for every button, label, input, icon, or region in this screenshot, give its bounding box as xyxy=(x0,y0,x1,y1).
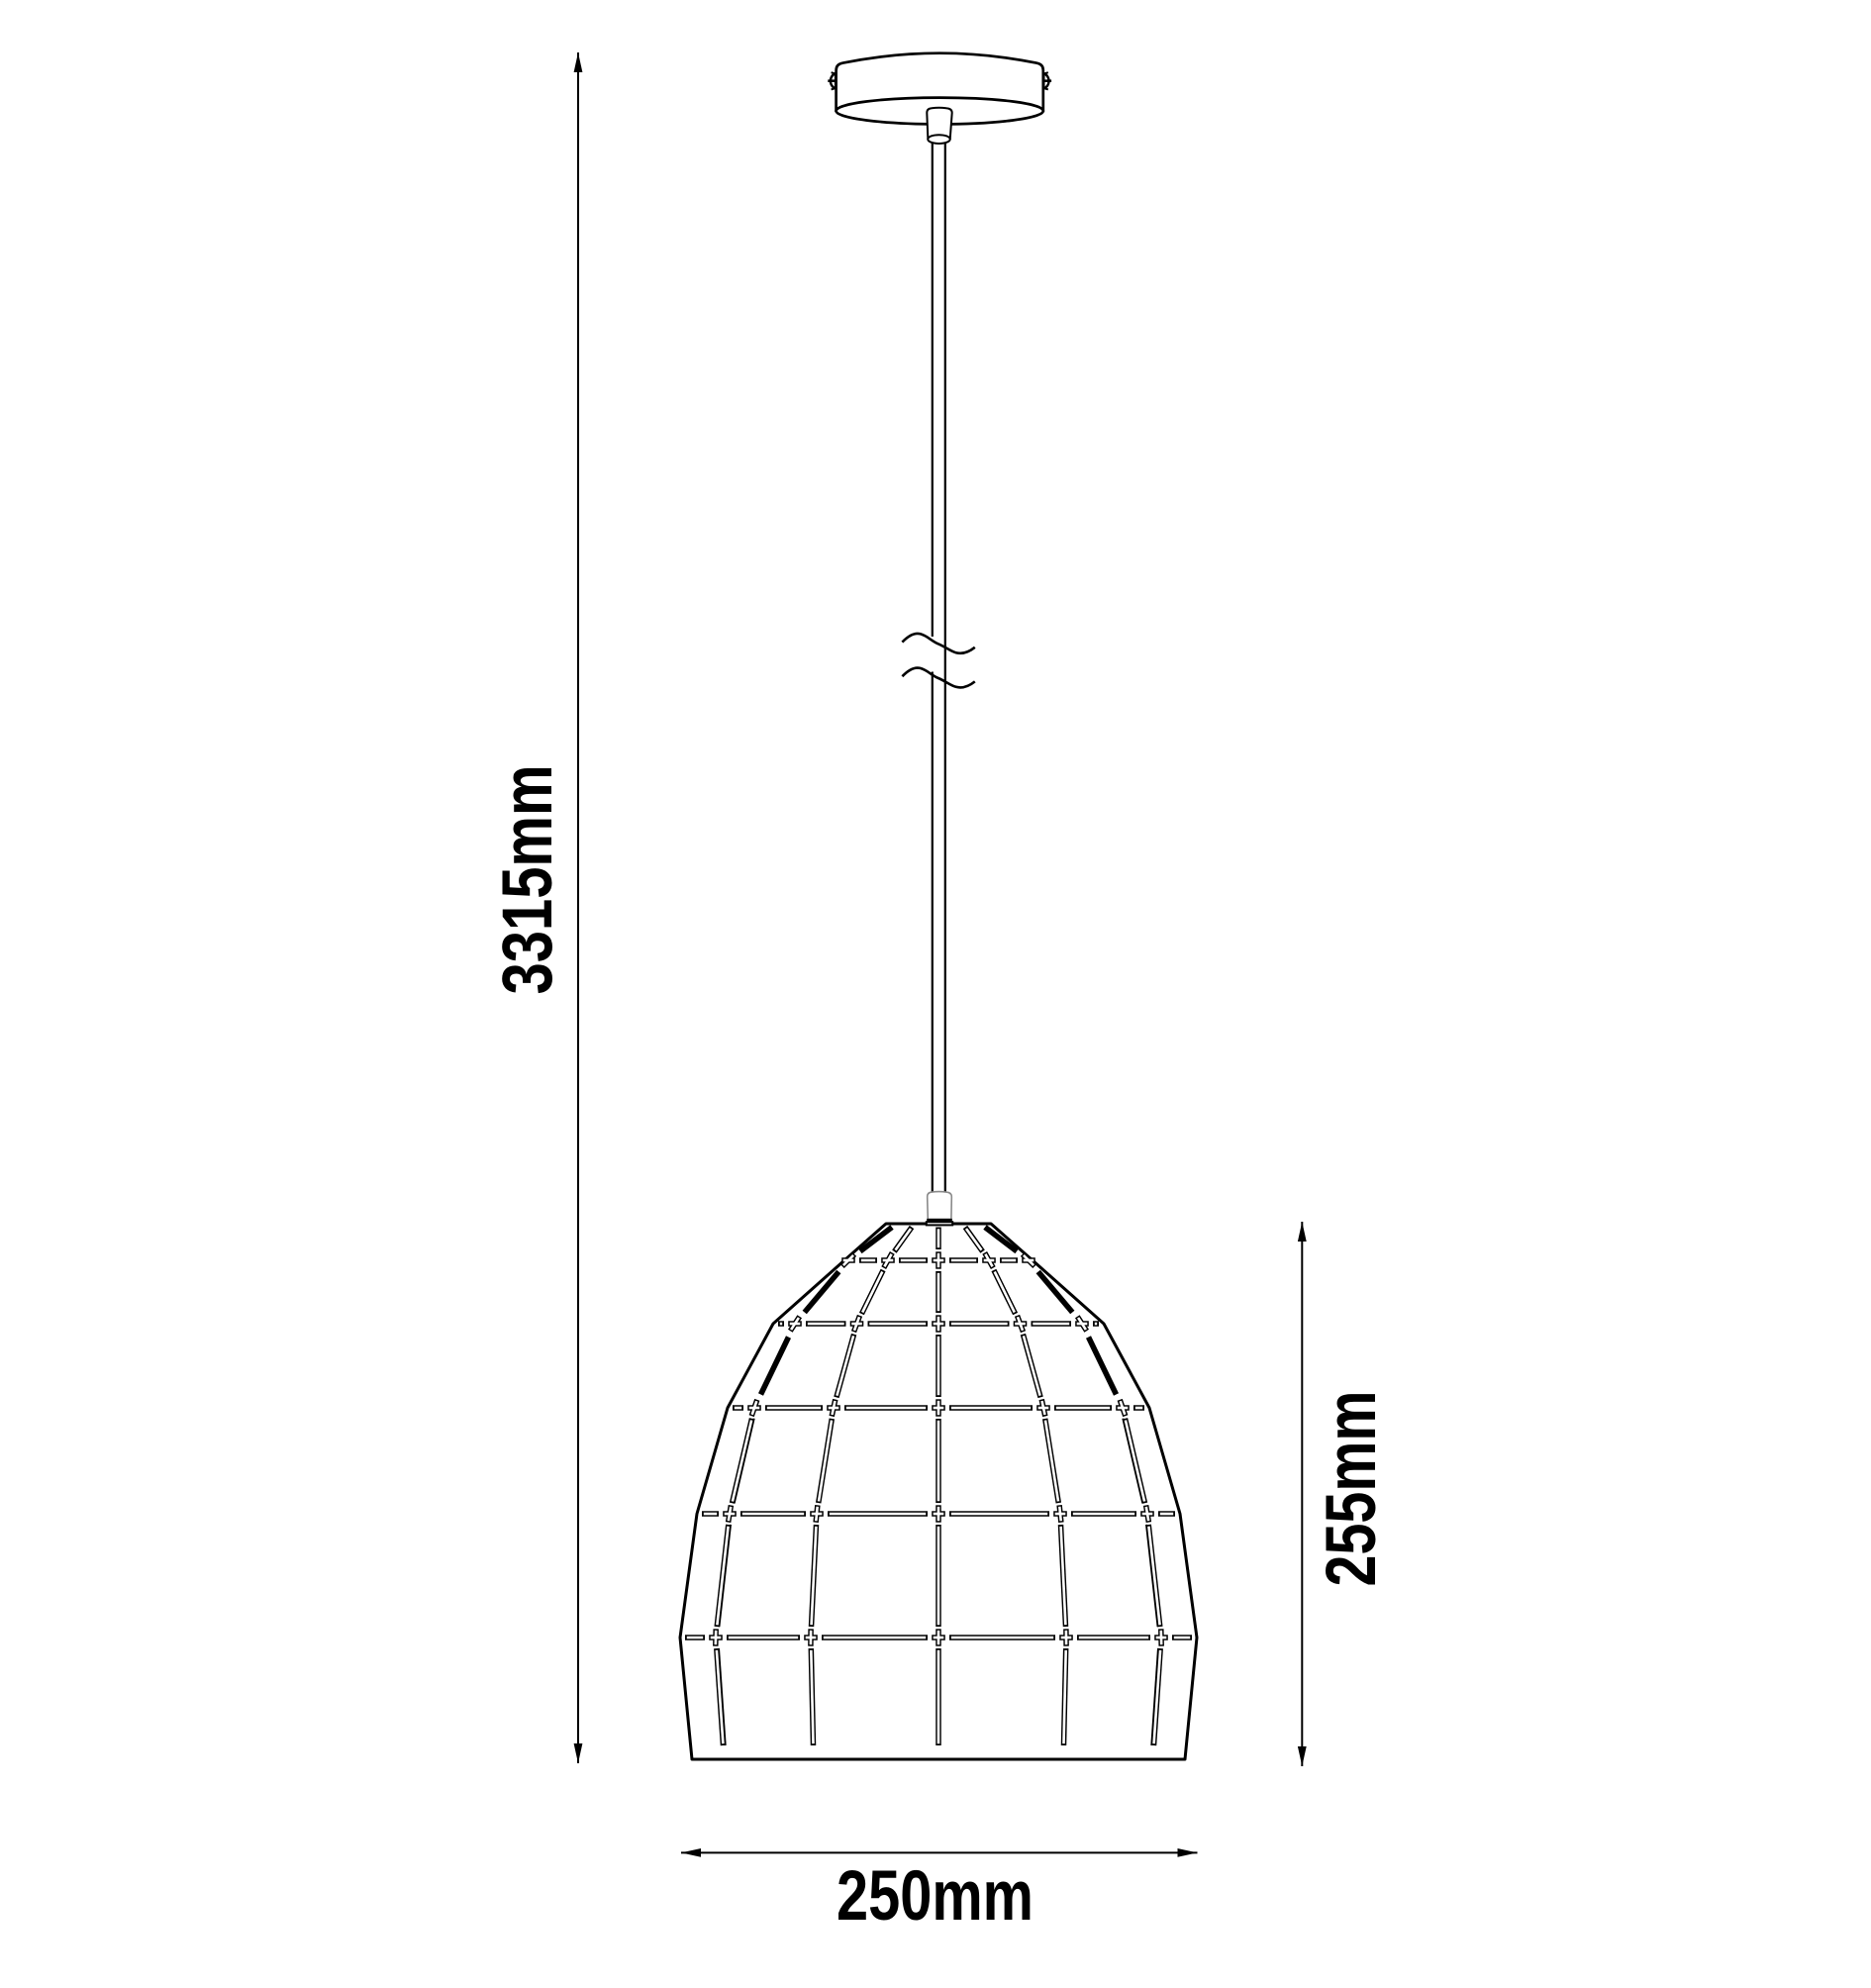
svg-text:250mm: 250mm xyxy=(837,1857,1034,1936)
svg-text:3315mm: 3315mm xyxy=(489,765,567,995)
svg-text:255mm: 255mm xyxy=(1313,1391,1391,1587)
